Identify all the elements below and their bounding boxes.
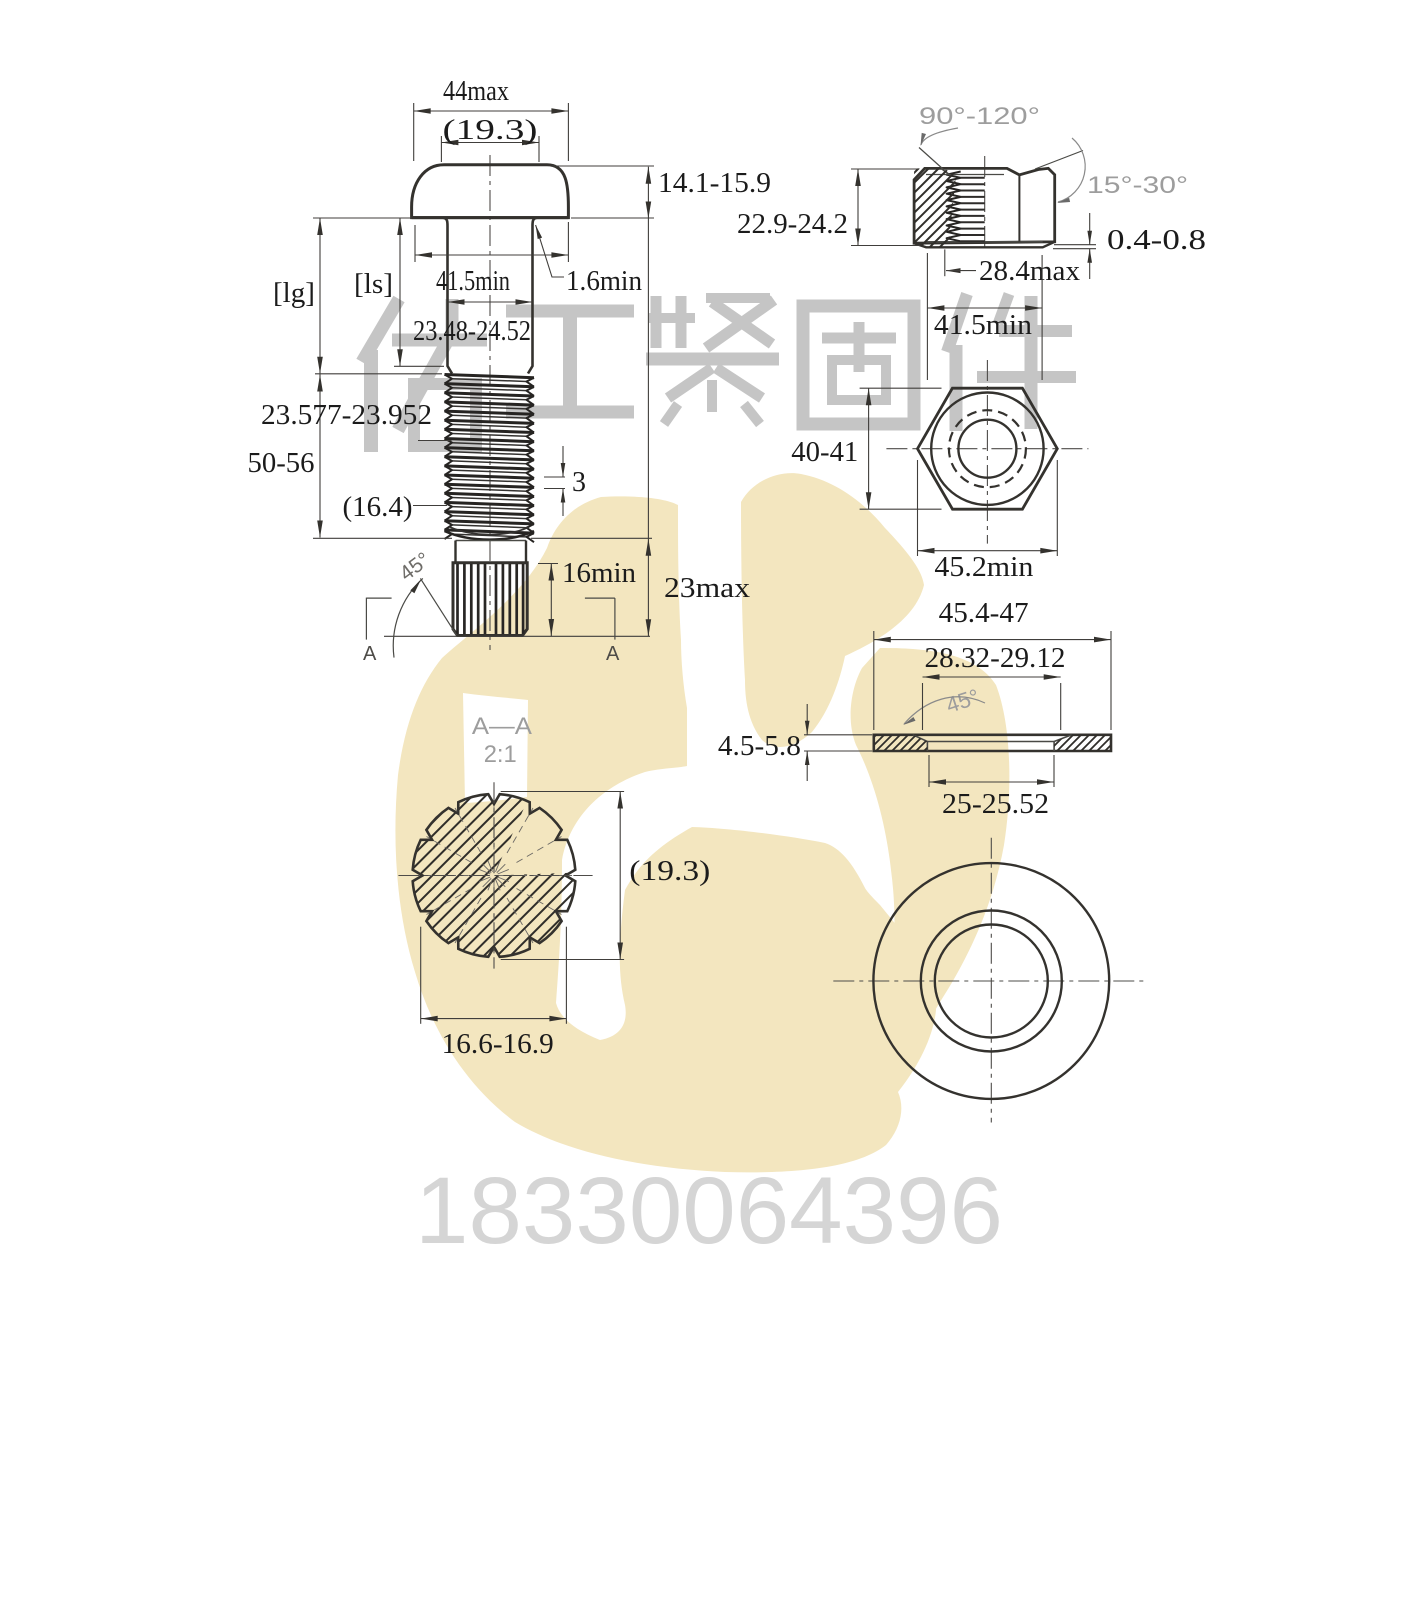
svg-text:2:1: 2:1 [484, 741, 517, 768]
svg-text:50-56: 50-56 [248, 448, 315, 479]
svg-text:23.48-24.52: 23.48-24.52 [413, 316, 531, 347]
svg-text:16.6-16.9: 16.6-16.9 [442, 1029, 554, 1060]
svg-text:90°-120°: 90°-120° [919, 103, 1040, 130]
svg-text:(19.3): (19.3) [443, 115, 538, 146]
svg-text:25-25.52: 25-25.52 [942, 789, 1049, 820]
svg-text:23.577-23.952: 23.577-23.952 [261, 400, 432, 431]
svg-text:45°: 45° [395, 548, 434, 585]
svg-text:44max: 44max [443, 76, 509, 107]
svg-text:28.32-29.12: 28.32-29.12 [925, 643, 1066, 674]
svg-text:16min: 16min [562, 558, 636, 589]
svg-text:(16.4): (16.4) [343, 492, 413, 523]
svg-text:[ls]: [ls] [354, 269, 393, 300]
svg-text:[lg]: [lg] [273, 278, 315, 309]
svg-text:23max: 23max [664, 573, 750, 604]
svg-text:0.4-0.8: 0.4-0.8 [1107, 225, 1206, 256]
svg-text:41.5min: 41.5min [436, 266, 510, 297]
svg-text:45.2min: 45.2min [934, 552, 1033, 583]
svg-text:3: 3 [572, 467, 586, 498]
svg-text:40-41: 40-41 [791, 437, 858, 468]
svg-text:22.9-24.2: 22.9-24.2 [737, 209, 848, 240]
svg-text:A—A: A—A [472, 713, 532, 740]
svg-text:18330064396: 18330064396 [415, 1158, 1003, 1264]
svg-text:28.4max: 28.4max [979, 256, 1080, 287]
svg-text:1.6min: 1.6min [566, 266, 642, 297]
svg-text:(19.3): (19.3) [629, 856, 710, 887]
svg-text:45.4-47: 45.4-47 [939, 598, 1029, 629]
svg-text:14.1-15.9: 14.1-15.9 [658, 168, 771, 199]
svg-text:15°-30°: 15°-30° [1087, 172, 1188, 199]
svg-text:4.5-5.8: 4.5-5.8 [718, 731, 801, 762]
svg-text:A: A [606, 643, 620, 665]
svg-text:41.5min: 41.5min [934, 310, 1032, 341]
svg-text:A: A [363, 643, 377, 665]
